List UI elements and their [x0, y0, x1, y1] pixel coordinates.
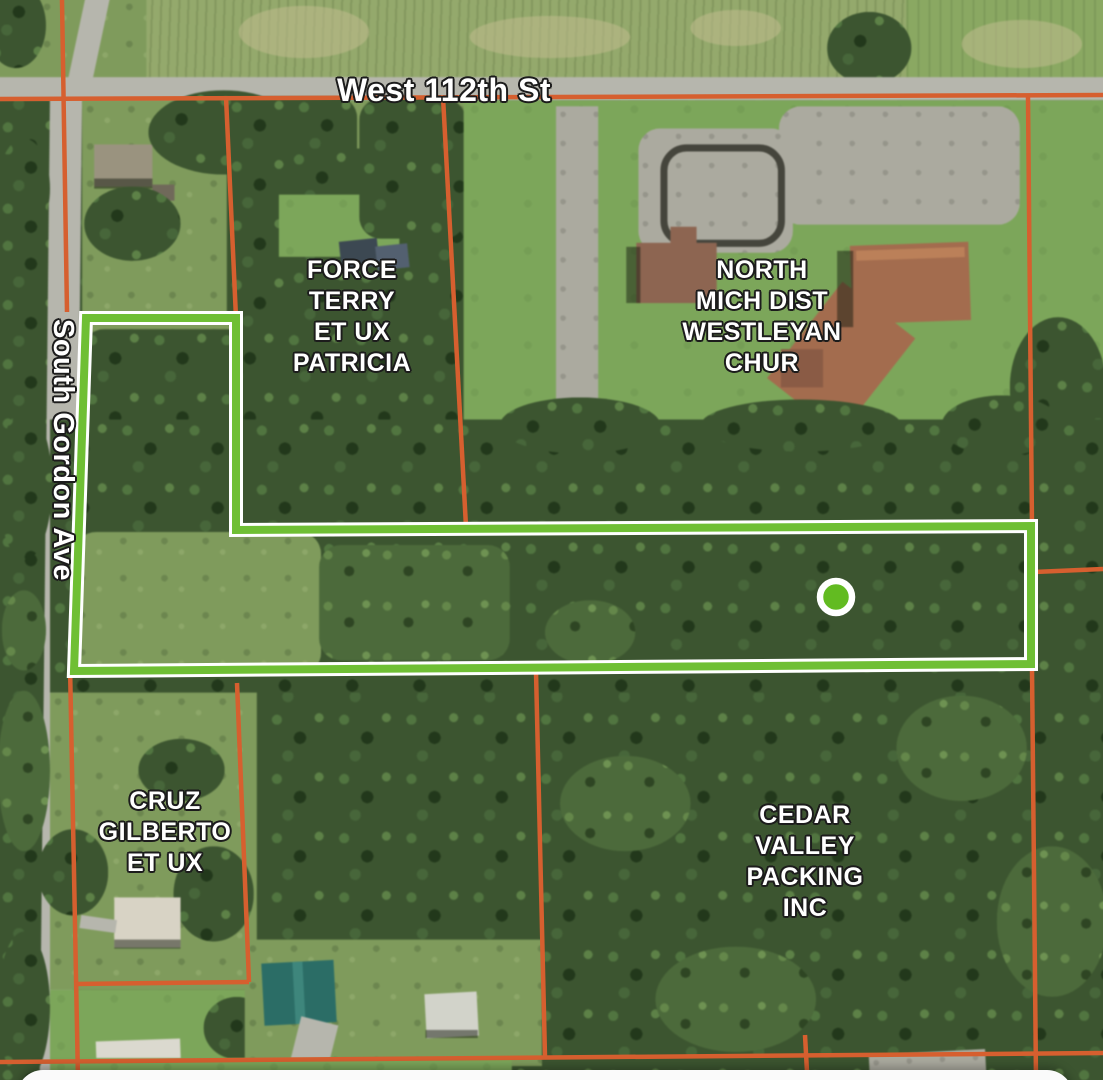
map-canvas[interactable]: West 112th St South Gordon Ave FORCE TER… — [0, 0, 1103, 1080]
street-label-west-112th-st: West 112th St — [314, 72, 574, 109]
map-overlay — [0, 0, 1103, 1080]
parcel-label-cedar-valley-packing-inc: CEDAR VALLEY PACKING INC — [695, 800, 915, 924]
selected-parcel-outline — [74, 318, 1031, 671]
selected-parcel-marker[interactable] — [820, 581, 852, 613]
bottom-sheet[interactable] — [17, 1070, 1073, 1080]
parcel-label-cruz-gilberto-et-ux: CRUZ GILBERTO ET UX — [65, 786, 265, 879]
parcel-label-north-mich-dist-westleyan-chur: NORTH MICH DIST WESTLEYAN CHUR — [642, 255, 882, 379]
parcel-boundary-lines — [0, 0, 1103, 1080]
parcel-label-force-terry-et-ux-patricia: FORCE TERRY ET UX PATRICIA — [252, 255, 452, 379]
street-label-south-gordon-ave: South Gordon Ave — [46, 300, 79, 600]
